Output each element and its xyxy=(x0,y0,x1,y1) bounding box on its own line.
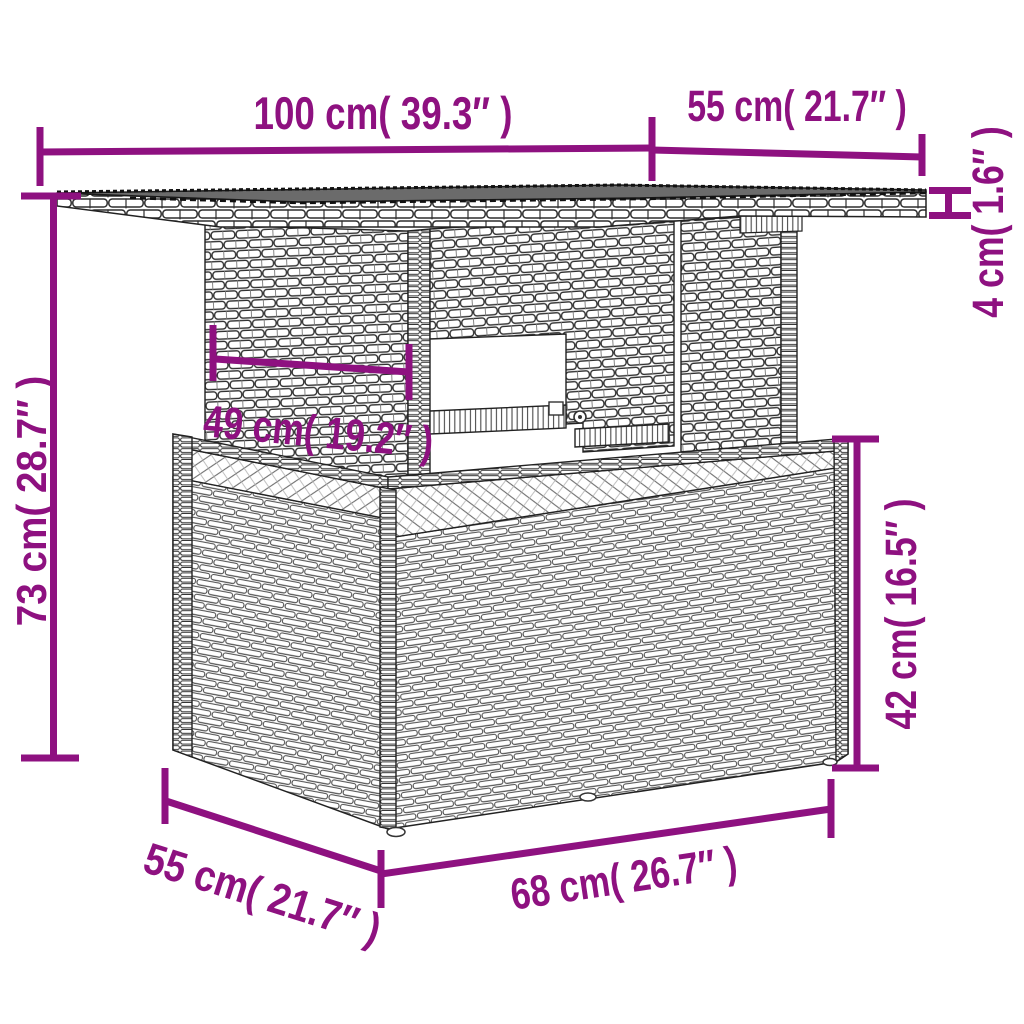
svg-text:55 cm( 21.7″ ): 55 cm( 21.7″ ) xyxy=(687,82,907,131)
svg-text:100 cm( 39.3″ ): 100 cm( 39.3″ ) xyxy=(253,87,512,139)
svg-text:73 cm( 28.7″ ): 73 cm( 28.7″ ) xyxy=(8,376,55,626)
svg-text:42 cm( 16.5″ ): 42 cm( 16.5″ ) xyxy=(877,498,926,729)
svg-text:4 cm( 1.6″ ): 4 cm( 1.6″ ) xyxy=(964,126,1013,317)
